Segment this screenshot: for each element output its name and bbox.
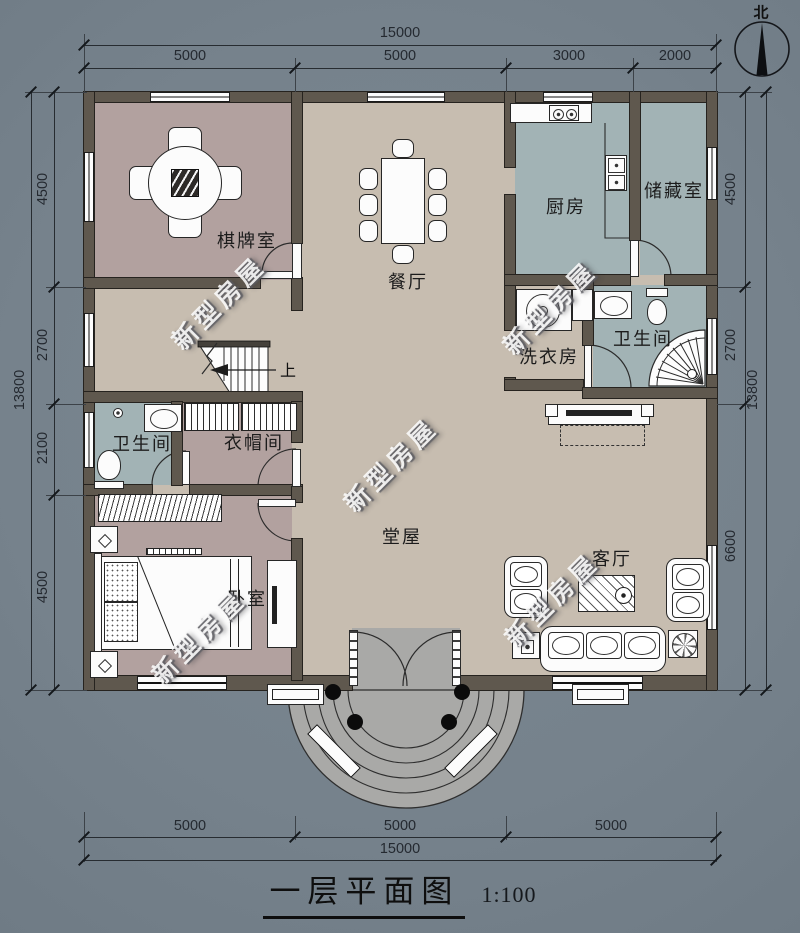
drawing-title: 一层平面图 bbox=[263, 866, 465, 919]
watermark: 新型房屋 bbox=[496, 544, 606, 654]
watermarks-layer: 新型房屋新型房屋新型房屋新型房屋新型房屋 bbox=[0, 0, 800, 933]
drawing-scale: 1:100 bbox=[481, 882, 536, 908]
watermark: 新型房屋 bbox=[335, 409, 445, 519]
watermark: 新型房屋 bbox=[143, 581, 253, 691]
watermark: 新型房屋 bbox=[163, 247, 273, 357]
floor-plan-canvas: 1500050005000300020005000500050001500045… bbox=[0, 0, 800, 933]
title-block: 一层平面图 1:100 bbox=[0, 866, 800, 919]
watermark: 新型房屋 bbox=[494, 252, 604, 362]
